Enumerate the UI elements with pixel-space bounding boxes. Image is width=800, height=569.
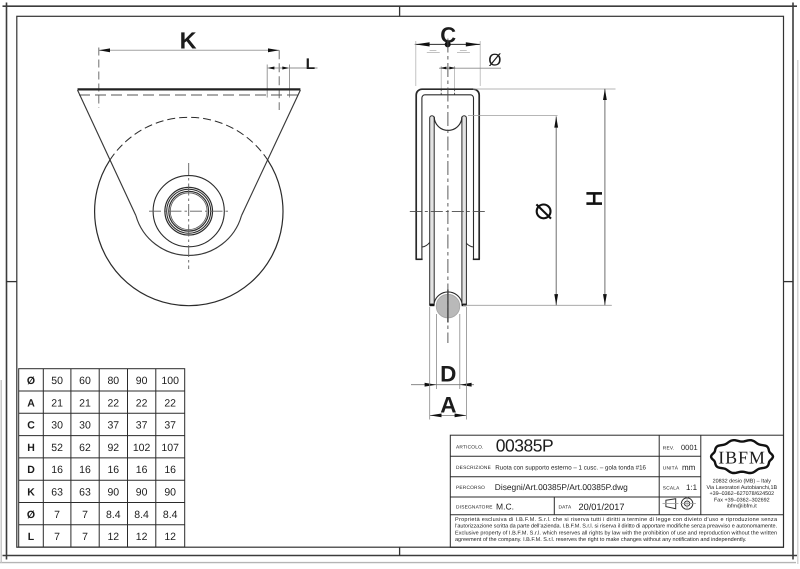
svg-text:63: 63 bbox=[79, 487, 91, 499]
svg-text:H: H bbox=[27, 442, 35, 454]
svg-text:REV.: REV. bbox=[663, 445, 675, 451]
svg-text:L: L bbox=[28, 531, 35, 543]
svg-text:SCALA: SCALA bbox=[663, 486, 680, 492]
svg-text:12: 12 bbox=[107, 531, 119, 543]
svg-text:52: 52 bbox=[51, 442, 63, 454]
svg-text:22: 22 bbox=[107, 397, 119, 409]
svg-text:20832 desio (MB) – Italy: 20832 desio (MB) – Italy bbox=[713, 479, 772, 485]
svg-text:12: 12 bbox=[164, 531, 176, 543]
svg-text:PERCORSO: PERCORSO bbox=[456, 485, 485, 491]
svg-text:+39–0362–627078/624502: +39–0362–627078/624502 bbox=[709, 491, 774, 497]
svg-text:7: 7 bbox=[82, 531, 88, 543]
svg-text:Ø: Ø bbox=[27, 509, 35, 521]
svg-text:50: 50 bbox=[51, 375, 63, 387]
svg-text:37: 37 bbox=[164, 420, 176, 432]
svg-text:DESCRIZIONE: DESCRIZIONE bbox=[456, 465, 491, 471]
svg-text:30: 30 bbox=[51, 420, 63, 432]
svg-text:37: 37 bbox=[136, 420, 148, 432]
svg-text:mm: mm bbox=[682, 463, 696, 472]
svg-text:Via Lavoratori Autobianchi,1B: Via Lavoratori Autobianchi,1B bbox=[706, 485, 777, 491]
svg-text:A: A bbox=[27, 397, 35, 409]
svg-text:C: C bbox=[27, 420, 35, 432]
svg-text:DISEGNATORE: DISEGNATORE bbox=[456, 505, 493, 511]
svg-text:8.4: 8.4 bbox=[134, 509, 149, 521]
svg-text:UNITÀ: UNITÀ bbox=[663, 464, 679, 471]
svg-text:63: 63 bbox=[51, 487, 63, 499]
svg-text:ibfm@ibfm.it: ibfm@ibfm.it bbox=[727, 504, 758, 510]
svg-text:Ø: Ø bbox=[488, 50, 501, 69]
svg-text:7: 7 bbox=[82, 509, 88, 521]
svg-text:00385P: 00385P bbox=[496, 435, 553, 455]
svg-text:K: K bbox=[27, 487, 35, 499]
svg-text:8.4: 8.4 bbox=[106, 509, 121, 521]
svg-text:37: 37 bbox=[107, 420, 119, 432]
svg-text:90: 90 bbox=[136, 487, 148, 499]
svg-text:Fax +39–0362–302692: Fax +39–0362–302692 bbox=[714, 497, 770, 503]
svg-text:ARTICOLO.: ARTICOLO. bbox=[456, 444, 484, 450]
svg-text:107: 107 bbox=[161, 442, 179, 454]
svg-text:80: 80 bbox=[107, 375, 119, 387]
svg-text:16: 16 bbox=[51, 464, 63, 476]
svg-text:1:1: 1:1 bbox=[686, 483, 698, 492]
svg-text:22: 22 bbox=[136, 397, 148, 409]
svg-text:Proprietà esclusiva di I.B.F.M: Proprietà esclusiva di I.B.F.M. S.r.l. c… bbox=[455, 516, 778, 523]
svg-text:K: K bbox=[180, 27, 197, 53]
svg-text:l’autorizzazione scritta da pa: l’autorizzazione scritta da parte dell’a… bbox=[455, 524, 777, 530]
svg-text:16: 16 bbox=[136, 464, 148, 476]
svg-text:8.4: 8.4 bbox=[163, 509, 178, 521]
svg-text:90: 90 bbox=[136, 375, 148, 387]
svg-text:62: 62 bbox=[79, 442, 91, 454]
svg-text:92: 92 bbox=[107, 442, 119, 454]
svg-text:60: 60 bbox=[79, 375, 91, 387]
svg-text:30: 30 bbox=[79, 420, 91, 432]
svg-text:Exclusive property of I.B.F.M.: Exclusive property of I.B.F.M. S.r.l. wh… bbox=[455, 530, 777, 536]
svg-text:20/01/2017: 20/01/2017 bbox=[579, 502, 625, 512]
svg-text:agreement of the company. I.B.: agreement of the company. I.B.F.M. S.r.l… bbox=[455, 537, 747, 543]
svg-text:7: 7 bbox=[54, 509, 60, 521]
svg-text:90: 90 bbox=[107, 487, 119, 499]
svg-text:7: 7 bbox=[54, 531, 60, 543]
svg-text:0001: 0001 bbox=[681, 443, 698, 452]
svg-text:100: 100 bbox=[161, 375, 179, 387]
svg-text:22: 22 bbox=[164, 397, 176, 409]
svg-text:21: 21 bbox=[51, 397, 63, 409]
svg-text:90: 90 bbox=[164, 487, 176, 499]
svg-text:Disegni/Art.00385P/Art.00385P.: Disegni/Art.00385P/Art.00385P.dwg bbox=[495, 482, 628, 492]
svg-text:16: 16 bbox=[164, 464, 176, 476]
svg-text:D: D bbox=[440, 361, 456, 386]
svg-text:L: L bbox=[306, 56, 315, 73]
svg-text:16: 16 bbox=[79, 464, 91, 476]
svg-text:D: D bbox=[27, 464, 35, 476]
svg-text:A: A bbox=[440, 392, 456, 417]
svg-text:16: 16 bbox=[107, 464, 119, 476]
svg-text:102: 102 bbox=[133, 442, 151, 454]
svg-text:M.C.: M.C. bbox=[496, 501, 514, 511]
svg-text:21: 21 bbox=[79, 397, 91, 409]
svg-text:Ø: Ø bbox=[27, 375, 35, 387]
svg-text:DATA: DATA bbox=[559, 505, 572, 511]
svg-text:Ruota con supporto esterno – 1: Ruota con supporto esterno – 1 cusc. – g… bbox=[495, 464, 646, 471]
svg-text:IBFM: IBFM bbox=[718, 447, 766, 467]
svg-text:12: 12 bbox=[136, 531, 148, 543]
